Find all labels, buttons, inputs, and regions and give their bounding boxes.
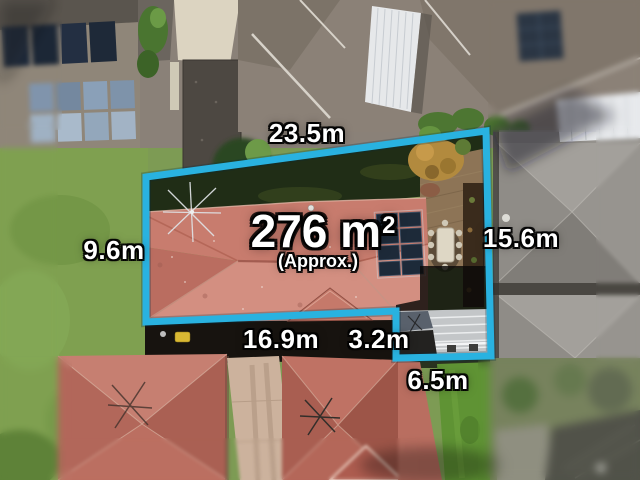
measurement-right: 15.6m xyxy=(483,225,559,251)
measurement-left: 9.6m xyxy=(83,237,144,263)
measurement-bottom: 16.9m xyxy=(243,326,319,352)
measurement-notch: 6.5m xyxy=(407,367,468,393)
measurement-top: 23.5m xyxy=(269,120,345,146)
measurement-step: 3.2m xyxy=(348,326,409,352)
area-approx-label: (Approx.) xyxy=(278,252,358,270)
property-aerial-view: 276 m2 (Approx.) 23.5m 9.6m 15.6m 16.9m … xyxy=(0,0,640,480)
area-label: 276 m2 xyxy=(251,208,396,254)
